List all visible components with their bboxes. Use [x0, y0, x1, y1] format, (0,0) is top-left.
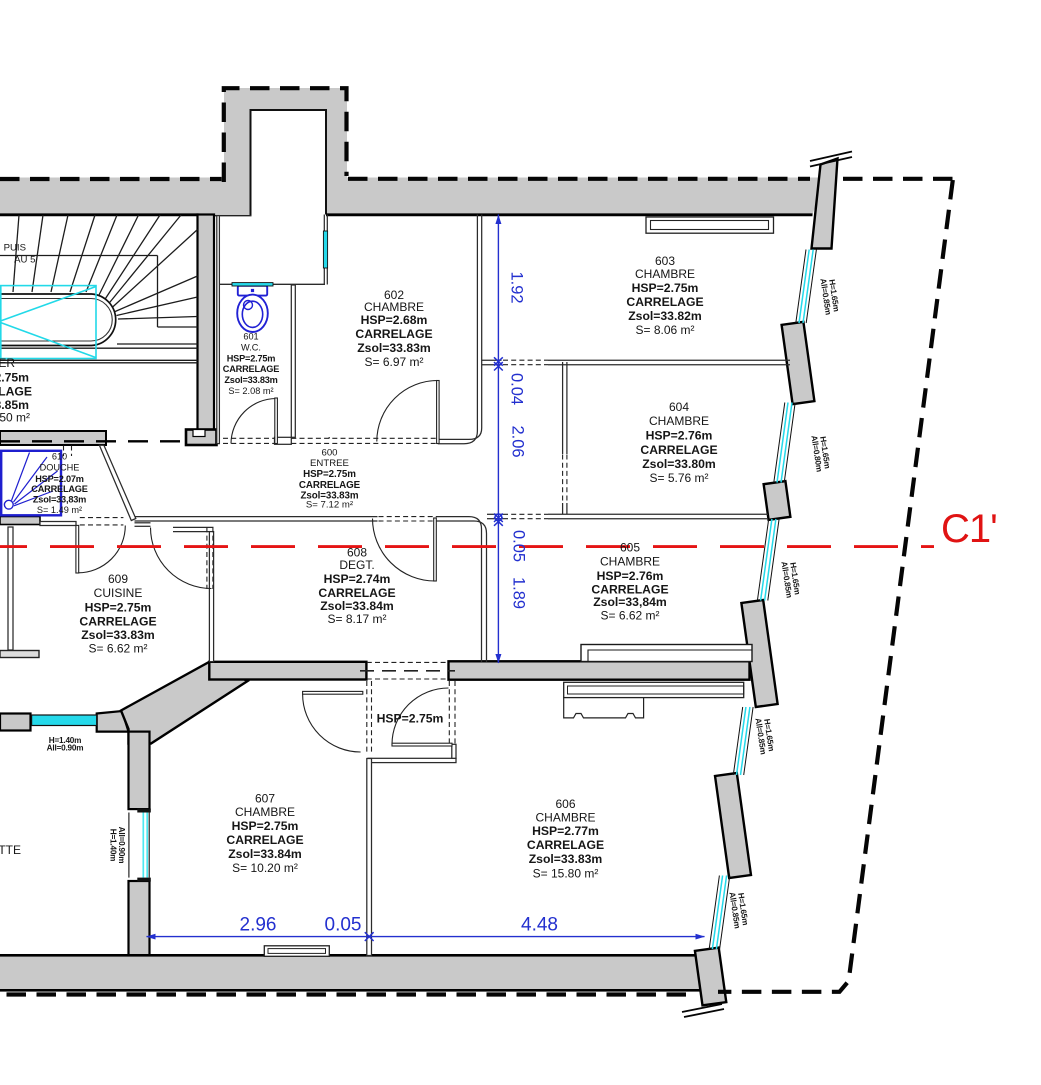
svg-text:1.89: 1.89	[510, 577, 528, 609]
svg-text:S= 1.49 m²: S= 1.49 m²	[37, 505, 82, 515]
svg-text:0.05: 0.05	[510, 530, 528, 562]
svg-text:HSP=2.75m: HSP=2.75m	[227, 353, 276, 363]
svg-text:S= 15.80 m²: S= 15.80 m²	[533, 867, 599, 881]
svg-text:HSP=2.75m: HSP=2.75m	[377, 712, 444, 726]
svg-text:HSP=2.68m: HSP=2.68m	[361, 313, 428, 327]
svg-text:Zsol=33,84m: Zsol=33,84m	[593, 595, 667, 609]
svg-text:610: 610	[52, 452, 67, 462]
svg-text:606: 606	[555, 797, 575, 811]
svg-text:CHAMBRE: CHAMBRE	[600, 555, 660, 569]
svg-text:HSP=2.76m: HSP=2.76m	[597, 569, 664, 583]
svg-text:607: 607	[255, 792, 275, 806]
svg-text:HSP=2.07m: HSP=2.07m	[35, 474, 84, 484]
svg-text:TTE: TTE	[0, 843, 21, 857]
svg-text:S= 6.97 m²: S= 6.97 m²	[364, 355, 423, 369]
svg-text:Zsol=33,83m: Zsol=33,83m	[33, 495, 86, 505]
svg-text:CHAMBRE: CHAMBRE	[235, 805, 295, 819]
svg-text:Zsol=33.84m: Zsol=33.84m	[228, 847, 302, 861]
svg-text:CARRELAGE: CARRELAGE	[226, 833, 303, 847]
svg-text:0.04: 0.04	[508, 373, 526, 405]
svg-text:ENTREE: ENTREE	[310, 458, 349, 469]
svg-text:H=1.40m: H=1.40m	[109, 829, 118, 862]
svg-text:0.05: 0.05	[325, 915, 362, 936]
svg-text:HSP=2.77m: HSP=2.77m	[532, 824, 599, 838]
svg-text:CHAMBRE: CHAMBRE	[535, 811, 595, 825]
svg-text:CARRELAGE: CARRELAGE	[223, 364, 279, 374]
svg-text:2.96: 2.96	[240, 915, 277, 936]
svg-text:HSP=2.75m: HSP=2.75m	[85, 601, 152, 615]
svg-text:2.06: 2.06	[509, 425, 527, 457]
svg-text:2.75m: 2.75m	[0, 371, 29, 385]
svg-text:HSP=2.75m: HSP=2.75m	[303, 469, 356, 480]
svg-text:S= 8.06 m²: S= 8.06 m²	[635, 323, 694, 337]
svg-text:Zsol=33.83m: Zsol=33.83m	[529, 852, 603, 866]
svg-text:HSP=2.76m: HSP=2.76m	[646, 429, 713, 443]
svg-text:PUIS: PUIS	[4, 243, 26, 254]
svg-text:CARRELAGE: CARRELAGE	[355, 327, 432, 341]
svg-text:604: 604	[669, 400, 689, 414]
svg-text:HSP=2.75m: HSP=2.75m	[632, 281, 699, 295]
svg-text:609: 609	[108, 572, 128, 586]
svg-text:W.C.: W.C.	[241, 343, 261, 353]
svg-text:Zsol=33.83m: Zsol=33.83m	[81, 628, 155, 642]
svg-text:CARRELAGE: CARRELAGE	[626, 295, 703, 309]
svg-text:Zsol=33.84m: Zsol=33.84m	[320, 599, 394, 613]
svg-text:S= 2.08 m²: S= 2.08 m²	[228, 386, 273, 396]
svg-text:CARRELAGE: CARRELAGE	[318, 586, 395, 600]
svg-text:S= 7.12 m²: S= 7.12 m²	[306, 499, 354, 510]
svg-text:Zsol=33.83m: Zsol=33.83m	[224, 375, 277, 385]
svg-text:Zsol=33.82m: Zsol=33.82m	[628, 309, 702, 323]
svg-text:All=0.90m: All=0.90m	[117, 827, 126, 864]
svg-text:DOUCHE: DOUCHE	[40, 463, 80, 473]
svg-text:50 m²: 50 m²	[0, 411, 30, 425]
svg-text:CARRELAGE: CARRELAGE	[79, 615, 156, 629]
svg-text:CARRELAGE: CARRELAGE	[640, 443, 717, 457]
svg-text:CHAMBRE: CHAMBRE	[649, 414, 709, 428]
svg-text:HSP=2.74m: HSP=2.74m	[324, 572, 391, 586]
svg-text:600: 600	[321, 448, 337, 459]
svg-text:603: 603	[655, 254, 675, 268]
svg-text:CHAMBRE: CHAMBRE	[364, 300, 424, 314]
svg-text:CUISINE: CUISINE	[94, 586, 143, 600]
svg-text:C1': C1'	[941, 507, 997, 551]
svg-text:S= 5.76 m²: S= 5.76 m²	[649, 471, 708, 485]
svg-text:LAGE: LAGE	[0, 385, 32, 399]
svg-text:S= 6.62 m²: S= 6.62 m²	[88, 641, 147, 655]
svg-text:1.92: 1.92	[508, 271, 526, 303]
svg-text:ER: ER	[0, 356, 15, 370]
svg-text:HSP=2.75m: HSP=2.75m	[232, 819, 299, 833]
svg-text:605: 605	[620, 540, 640, 554]
svg-text:4.48: 4.48	[521, 915, 558, 936]
svg-text:AU 5: AU 5	[14, 255, 35, 266]
svg-text:Zsol=33.83m: Zsol=33.83m	[357, 341, 431, 355]
svg-text:DEGT.: DEGT.	[339, 558, 374, 572]
svg-text:601: 601	[243, 332, 258, 342]
svg-text:S= 6.62 m²: S= 6.62 m²	[600, 609, 659, 623]
svg-text:CHAMBRE: CHAMBRE	[635, 267, 695, 281]
svg-text:S= 8.17 m²: S= 8.17 m²	[327, 612, 386, 626]
svg-text:All=0.90m: All=0.90m	[47, 744, 84, 753]
svg-text:S= 10.20 m²: S= 10.20 m²	[232, 861, 298, 875]
svg-text:Zsol=33.80m: Zsol=33.80m	[642, 457, 716, 471]
svg-text:CARRELAGE: CARRELAGE	[527, 838, 604, 852]
svg-text:CARRELAGE: CARRELAGE	[31, 484, 87, 494]
